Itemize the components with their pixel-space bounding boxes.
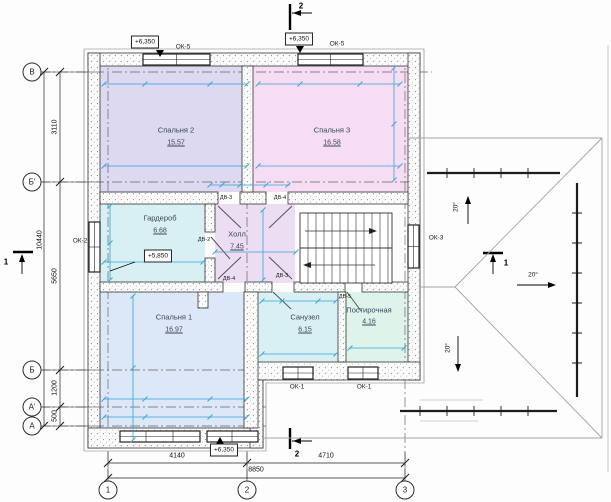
window-tag-ok2: ОК-2	[73, 238, 88, 245]
dim-bottom-4710: 4710	[318, 453, 334, 460]
room-name-hall: Холл	[228, 230, 246, 239]
room-area-laundry: 4.16	[362, 319, 376, 326]
room-area-bathroom: 6.15	[298, 327, 312, 334]
window-ok1-left	[283, 367, 313, 379]
stairs	[300, 213, 392, 283]
room-name-wardrobe: Гардероб	[144, 214, 177, 223]
door-tag-laundry: ДВ-5	[339, 294, 351, 300]
axis-bubble-row-b1: Б'	[23, 173, 42, 192]
room-area-bedroom3: 16.58	[323, 140, 341, 147]
window-tag-ok1-right: ОК-1	[357, 384, 372, 391]
room-name-laundry: Постирочная	[346, 306, 391, 315]
door-tag-hall-bathroom: ДВ-3	[276, 273, 288, 279]
axis-bubble-row-a: А	[23, 417, 42, 436]
elevation-mark-top-right: +6,350	[285, 33, 313, 46]
section-label-1-right: 1	[504, 259, 508, 268]
floor-plan-drawing: Спальня 2 15.57 Спальня 3 16.58 Гардероб…	[0, 0, 611, 502]
room-area-hall: 7.45	[230, 244, 244, 251]
room-name-bedroom3: Спальня 3	[314, 126, 350, 135]
section-label-2-top: 2	[299, 2, 303, 11]
door-tag-hall-bedroom3: ДВ-4	[274, 195, 286, 201]
window-tag-ok1-left: ОК-1	[290, 384, 305, 391]
section-label-2-bottom: 2	[295, 450, 299, 459]
room-name-bedroom1: Спальня 1	[156, 313, 192, 322]
room-name-bedroom2: Спальня 2	[158, 126, 194, 135]
hall-fill	[215, 204, 295, 283]
axis-bubble-col-3: 3	[396, 481, 415, 500]
plan-linework	[0, 0, 611, 502]
door-tag-hall-bedroom2: ДВ-3	[220, 195, 232, 201]
window-ok5-left	[143, 54, 210, 65]
axis-bubble-col-2: 2	[238, 481, 257, 500]
room-area-bedroom1: 16.97	[165, 327, 183, 334]
door-tag-hall-wardrobe: ДВ-2	[198, 237, 210, 243]
window-ok1-right	[348, 367, 378, 379]
window-ok5-right	[298, 54, 363, 65]
roof-slope-label-up: 20°	[453, 202, 460, 212]
window-ok3	[408, 225, 419, 268]
dim-left-1200: 1200	[52, 380, 59, 396]
roof-slope-arrows	[455, 196, 556, 372]
room-name-bathroom: Санузел	[290, 313, 319, 322]
window-bottom-left-wide	[120, 431, 200, 442]
window-ok2	[89, 222, 100, 272]
window-tag-ok3: ОК-3	[429, 235, 444, 242]
dim-left-5650: 5650	[52, 268, 59, 284]
room-area-bedroom2: 15.57	[167, 140, 185, 147]
roof-snow-guards	[400, 168, 582, 416]
elevation-mark-bottom: +6,350	[210, 444, 238, 457]
room-area-wardrobe: 6.68	[153, 228, 167, 235]
dim-bottom-4140: 4140	[169, 453, 185, 460]
elevation-mark-top-left: +6,350	[131, 36, 159, 49]
elevation-mark-wardrobe: +5,850	[144, 250, 172, 263]
window-tag-ok5-left: ОК-5	[176, 44, 191, 51]
section-label-1-left: 1	[4, 258, 8, 267]
door-tag-hall-bedroom1: ДВ-4	[223, 276, 235, 282]
axis-bubble-row-v: В	[23, 63, 42, 82]
roof-slope-label-right: 20°	[528, 272, 538, 279]
window-bottom-left-narrow	[207, 431, 258, 442]
dim-bottom-total: 8850	[248, 467, 264, 474]
dim-left-500: 500	[52, 410, 59, 422]
window-tag-ok5-right: ОК-5	[330, 41, 345, 48]
axis-bubble-col-1: 1	[99, 481, 118, 500]
axis-bubble-row-a1: А'	[23, 398, 42, 417]
axis-bubble-row-b: Б	[23, 361, 42, 380]
dim-left-total: 10440	[37, 230, 44, 249]
roof-slope-label-down: 20°	[445, 343, 452, 353]
dim-left-3110: 3110	[52, 119, 59, 134]
